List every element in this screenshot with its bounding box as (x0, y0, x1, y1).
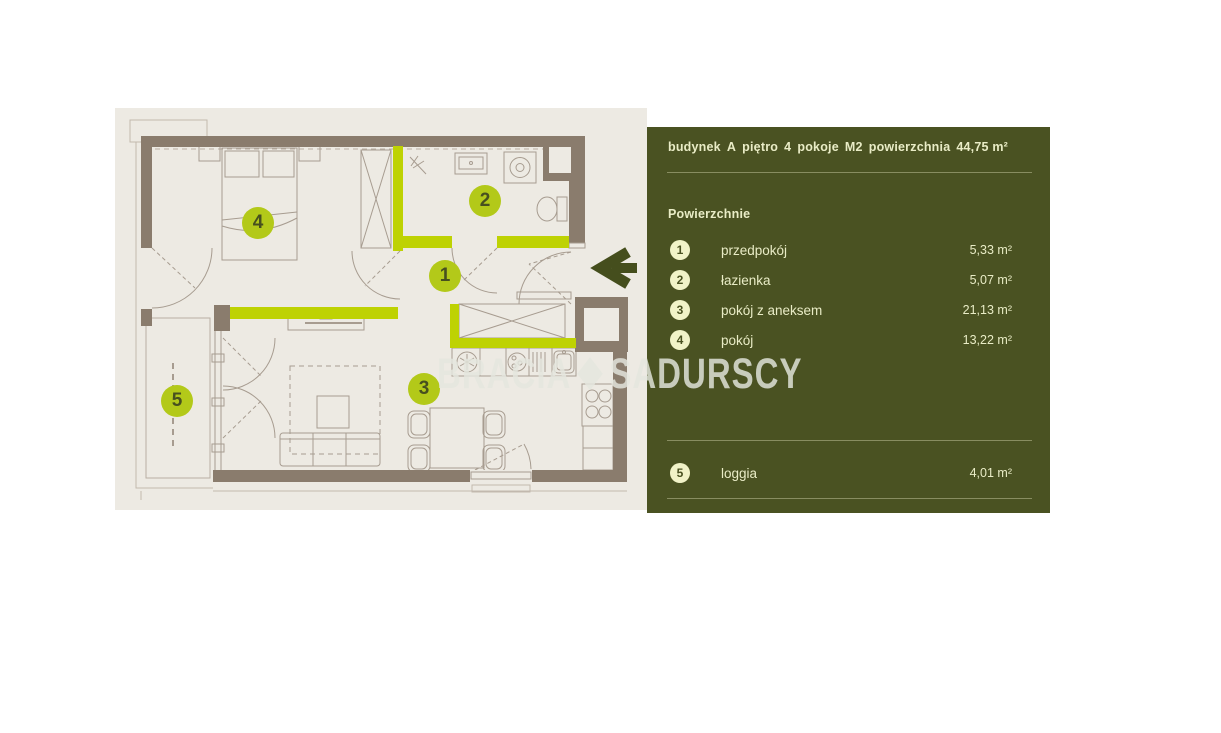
area-row: 5loggia4,01 m² (647, 458, 1050, 488)
room-area: 5,07 m² (970, 273, 1012, 287)
summary-item: powierzchnia44,75 m² (869, 140, 1008, 154)
loggia-row-container: 5loggia4,01 m² (647, 458, 1050, 488)
plan-room-number: 2 (480, 190, 491, 212)
summary-value: 44,75 m² (956, 140, 1008, 154)
washing-machine (504, 152, 536, 183)
room-label: loggia (721, 466, 757, 481)
plan-room-badge: 1 (429, 260, 461, 292)
info-panel: budynekApiętro4pokojeM2powierzchnia44,75… (647, 127, 1050, 513)
unit-summary: budynekApiętro4pokojeM2powierzchnia44,75… (668, 140, 1008, 154)
dining-set (408, 408, 505, 472)
entrance-arrow-icon (601, 252, 637, 284)
summary-item: pokojeM2 (797, 140, 862, 154)
floor-plan: 12345 (115, 108, 647, 510)
plan-room-badge: 3 (408, 373, 440, 405)
plan-room-number: 3 (419, 378, 430, 400)
bed (222, 148, 297, 260)
sofa (280, 433, 380, 466)
room-area: 21,13 m² (963, 303, 1012, 317)
shower-symbol (410, 156, 426, 174)
room-label: łazienka (721, 273, 771, 288)
divider (667, 498, 1032, 499)
section-title: Powierzchnie (668, 207, 750, 221)
room-number-badge: 3 (670, 300, 690, 320)
divider (667, 440, 1032, 441)
loggia-window-wall (212, 331, 224, 470)
wardrobe-hall (459, 304, 565, 338)
summary-label: piętro (742, 140, 778, 154)
watermark-text-right: SADURSCY (609, 349, 802, 398)
floor-plan-drawing (115, 108, 647, 510)
toilet (537, 197, 567, 221)
room-label: pokój (721, 333, 753, 348)
plan-room-number: 5 (172, 390, 183, 412)
plan-room-badge: 5 (161, 385, 193, 417)
room-number-badge: 2 (670, 270, 690, 290)
summary-label: budynek (668, 140, 721, 154)
summary-label: powierzchnia (869, 140, 951, 154)
divider (667, 172, 1032, 173)
coffee-table (317, 396, 349, 428)
plan-room-badge: 4 (242, 207, 274, 239)
rug (290, 366, 380, 454)
door-loggia-bottom (223, 386, 275, 438)
area-row: 3pokój z aneksem21,13 m² (647, 295, 1050, 325)
room-number-badge: 5 (670, 463, 690, 483)
summary-value: A (727, 140, 736, 154)
plan-room-badge: 2 (469, 185, 501, 217)
room-label: przedpokój (721, 243, 787, 258)
area-row: 2łazienka5,07 m² (647, 265, 1050, 295)
watermark: BRACIA SADURSCY (437, 349, 803, 398)
room-area: 13,22 m² (963, 333, 1012, 347)
bathroom-sink (455, 153, 487, 174)
room-number-badge: 1 (670, 240, 690, 260)
door-bedroom-left (152, 248, 212, 308)
room-area: 4,01 m² (970, 466, 1012, 480)
door-entrance (517, 252, 571, 304)
summary-item: budynekA (668, 140, 736, 154)
plan-room-number: 1 (440, 265, 451, 287)
wardrobe-bedroom (361, 150, 391, 248)
summary-value: M2 (845, 140, 863, 154)
door-room1-room4 (352, 251, 400, 299)
room-area: 5,33 m² (970, 243, 1012, 257)
watermark-text-left: BRACIA (437, 349, 571, 398)
summary-value: 4 (784, 140, 791, 154)
door-loggia-top (223, 338, 275, 390)
brand-diamond-icon (578, 357, 603, 390)
room-number-badge: 4 (670, 330, 690, 350)
summary-item: piętro4 (742, 140, 791, 154)
plan-room-number: 4 (253, 212, 264, 234)
area-row: 1przedpokój5,33 m² (647, 235, 1050, 265)
summary-label: pokoje (797, 140, 838, 154)
room-label: pokój z aneksem (721, 303, 822, 318)
areas-list: 1przedpokój5,33 m²2łazienka5,07 m²3pokój… (647, 235, 1050, 355)
